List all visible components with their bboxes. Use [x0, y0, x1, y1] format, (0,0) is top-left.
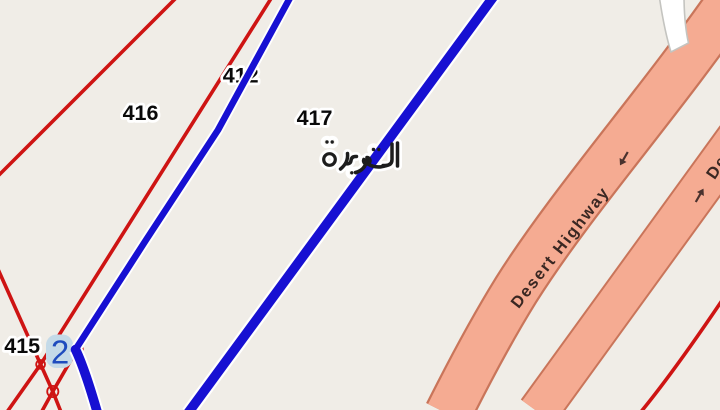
svg-text:416: 416	[123, 101, 159, 125]
svg-text:417: 417	[297, 106, 333, 130]
svg-text:2: 2	[51, 333, 69, 370]
svg-text:415: 415	[4, 334, 40, 358]
